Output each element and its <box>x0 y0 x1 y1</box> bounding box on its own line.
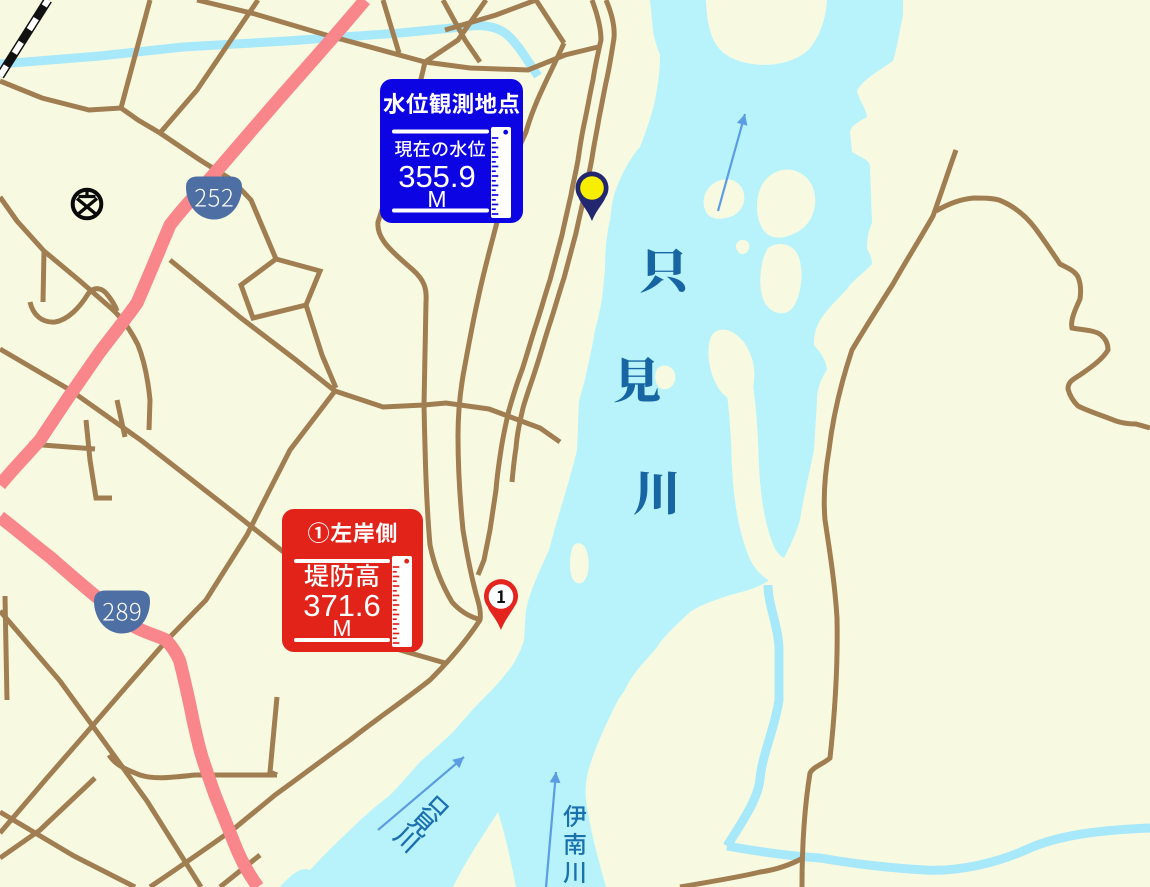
svg-text:M: M <box>332 615 351 641</box>
svg-text:M: M <box>427 186 446 212</box>
